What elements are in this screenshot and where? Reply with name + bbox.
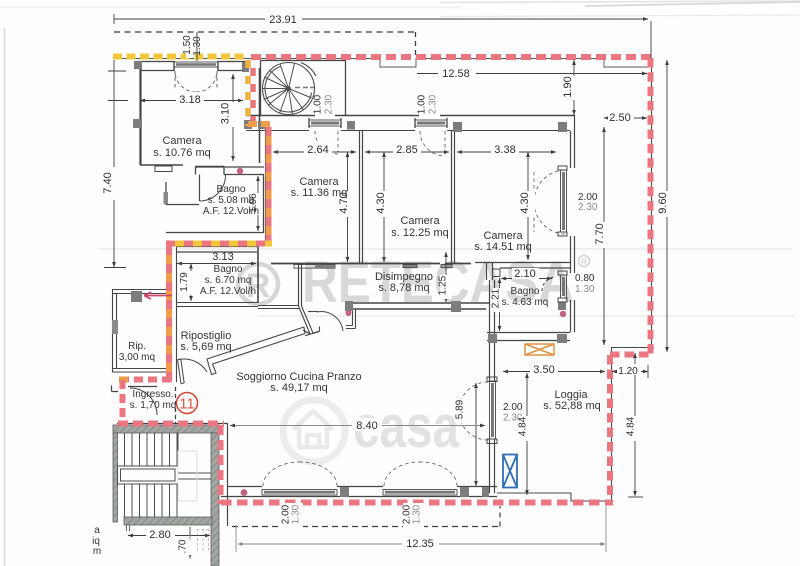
svg-text:12.58: 12.58 — [442, 68, 470, 80]
svg-text:2.00: 2.00 — [503, 402, 523, 413]
svg-text:.70: .70 — [178, 539, 189, 553]
svg-text:3.18: 3.18 — [179, 94, 200, 106]
svg-text:s. 10.76 mq: s. 10.76 mq — [153, 147, 210, 159]
svg-text:1.00: 1.00 — [313, 94, 324, 114]
svg-text:R: R — [581, 258, 587, 267]
svg-text:2.64: 2.64 — [307, 144, 328, 156]
svg-text:3.50: 3.50 — [533, 364, 554, 376]
svg-text:Camera: Camera — [162, 135, 202, 147]
svg-text:s. 6.70 mq: s. 6.70 mq — [205, 275, 252, 286]
svg-text:2.30: 2.30 — [324, 94, 335, 114]
svg-text:7.70: 7.70 — [594, 223, 606, 244]
svg-text:7.40: 7.40 — [102, 172, 114, 193]
svg-text:4.84: 4.84 — [626, 416, 637, 436]
svg-text:s. 4.63 mq: s. 4.63 mq — [502, 297, 549, 308]
svg-text:s. 14.51 mq: s. 14.51 mq — [474, 241, 531, 253]
svg-text:s. 1,70 mq: s. 1,70 mq — [130, 400, 177, 411]
svg-text:Ingresso.: Ingresso. — [132, 389, 173, 400]
svg-text:2.85: 2.85 — [396, 144, 417, 156]
svg-text:12.35: 12.35 — [406, 538, 434, 550]
svg-text:4.84: 4.84 — [518, 416, 529, 436]
svg-text:4.30: 4.30 — [375, 192, 387, 213]
svg-text:A.F. 12.Vol/h: A.F. 12.Vol/h — [203, 206, 259, 217]
svg-text:2.80: 2.80 — [149, 529, 170, 541]
svg-text:3,00 mq: 3,00 mq — [119, 352, 155, 363]
svg-text:1.30: 1.30 — [575, 284, 595, 295]
svg-text:3.13: 3.13 — [212, 251, 233, 263]
svg-text:4.30: 4.30 — [519, 192, 531, 213]
svg-text:3.10: 3.10 — [220, 103, 232, 124]
svg-text:1.30: 1.30 — [412, 504, 423, 524]
svg-text:s. 5.08 mq: s. 5.08 mq — [208, 195, 255, 206]
svg-text:1.30: 1.30 — [192, 36, 203, 56]
svg-text:2.30: 2.30 — [578, 202, 598, 213]
svg-text:Rip.: Rip. — [128, 341, 146, 352]
svg-text:3.38: 3.38 — [494, 144, 515, 156]
svg-text:s. 11.36 mq: s. 11.36 mq — [291, 187, 348, 199]
svg-text:a: a — [94, 525, 100, 536]
svg-text:s. 49,17 mq: s. 49,17 mq — [270, 382, 327, 394]
svg-text:Bagno: Bagno — [511, 286, 540, 297]
svg-text:5.89: 5.89 — [455, 399, 466, 419]
svg-text:2.30: 2.30 — [428, 94, 439, 114]
svg-text:23.91: 23.91 — [269, 14, 297, 26]
svg-text:Bagno: Bagno — [214, 264, 243, 275]
svg-text:0.80: 0.80 — [575, 273, 595, 284]
svg-text:1.90: 1.90 — [562, 76, 574, 97]
svg-text:1.00: 1.00 — [417, 94, 428, 114]
svg-text:8.40: 8.40 — [356, 420, 377, 432]
svg-text:Camera: Camera — [400, 215, 440, 227]
svg-text:1.20: 1.20 — [618, 366, 638, 377]
svg-text:11: 11 — [179, 396, 195, 413]
svg-text:1.30: 1.30 — [291, 504, 302, 524]
svg-text:1.25: 1.25 — [438, 275, 449, 295]
svg-text:2.10: 2.10 — [514, 268, 535, 280]
svg-text:m: m — [93, 546, 101, 557]
svg-text:A.F. 12.Vol/h: A.F. 12.Vol/h — [200, 286, 256, 297]
svg-text:s. 12.25 mq: s. 12.25 mq — [391, 227, 448, 239]
svg-text:1.79: 1.79 — [179, 272, 190, 292]
svg-text:s. 52,88 mq: s. 52,88 mq — [543, 400, 600, 412]
svg-text:2.21: 2.21 — [491, 288, 502, 308]
svg-text:s. 5,69 mq: s. 5,69 mq — [180, 341, 231, 353]
svg-text:9.60: 9.60 — [657, 192, 669, 213]
svg-text:2.50: 2.50 — [609, 112, 630, 124]
svg-text:s. 8,78 mq: s. 8,78 mq — [378, 282, 429, 294]
svg-text:Bagno: Bagno — [217, 184, 246, 195]
